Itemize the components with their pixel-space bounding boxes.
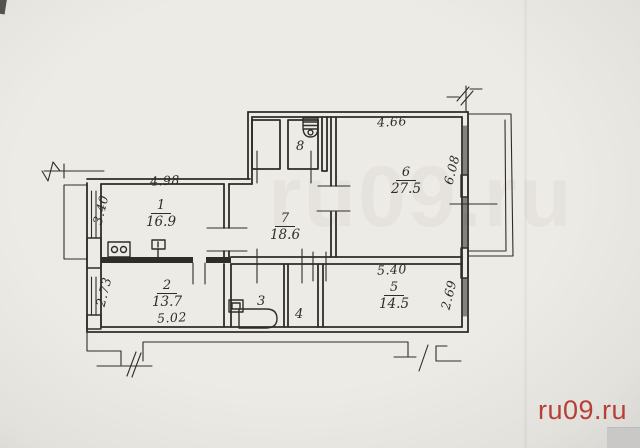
door-flag-icon [152, 240, 165, 259]
dim-room5-top: 5.40 [377, 262, 408, 277]
room-4-label: 4 [295, 308, 303, 322]
room-8-label: 8 [296, 140, 304, 154]
balcony-left [64, 185, 87, 259]
wall-fill [101, 257, 231, 263]
dim-room6-top: 4.66 [377, 114, 408, 129]
scanned-floor-plan: ru09.ru [0, 0, 640, 448]
room-1-label: 1 16.9 [139, 199, 183, 230]
room-6-label: 6 27.5 [384, 166, 428, 197]
balcony-right [468, 114, 513, 256]
axis-break-marks [42, 86, 482, 377]
room-7-label: 7 18.6 [263, 212, 307, 243]
dim-room1-top: 4.98 [150, 173, 181, 188]
room-5-label: 5 14.5 [372, 281, 416, 312]
bathtub-icon [239, 309, 277, 328]
room-3-label: 3 [257, 295, 265, 309]
scan-edge-patch [607, 427, 640, 448]
porch-outline [87, 332, 461, 366]
outlet-icon [108, 242, 130, 257]
room-2-label: 2 13.7 [145, 279, 189, 310]
watermark: ru09.ru [538, 395, 627, 426]
dim-room2-bottom: 5.02 [157, 310, 188, 325]
